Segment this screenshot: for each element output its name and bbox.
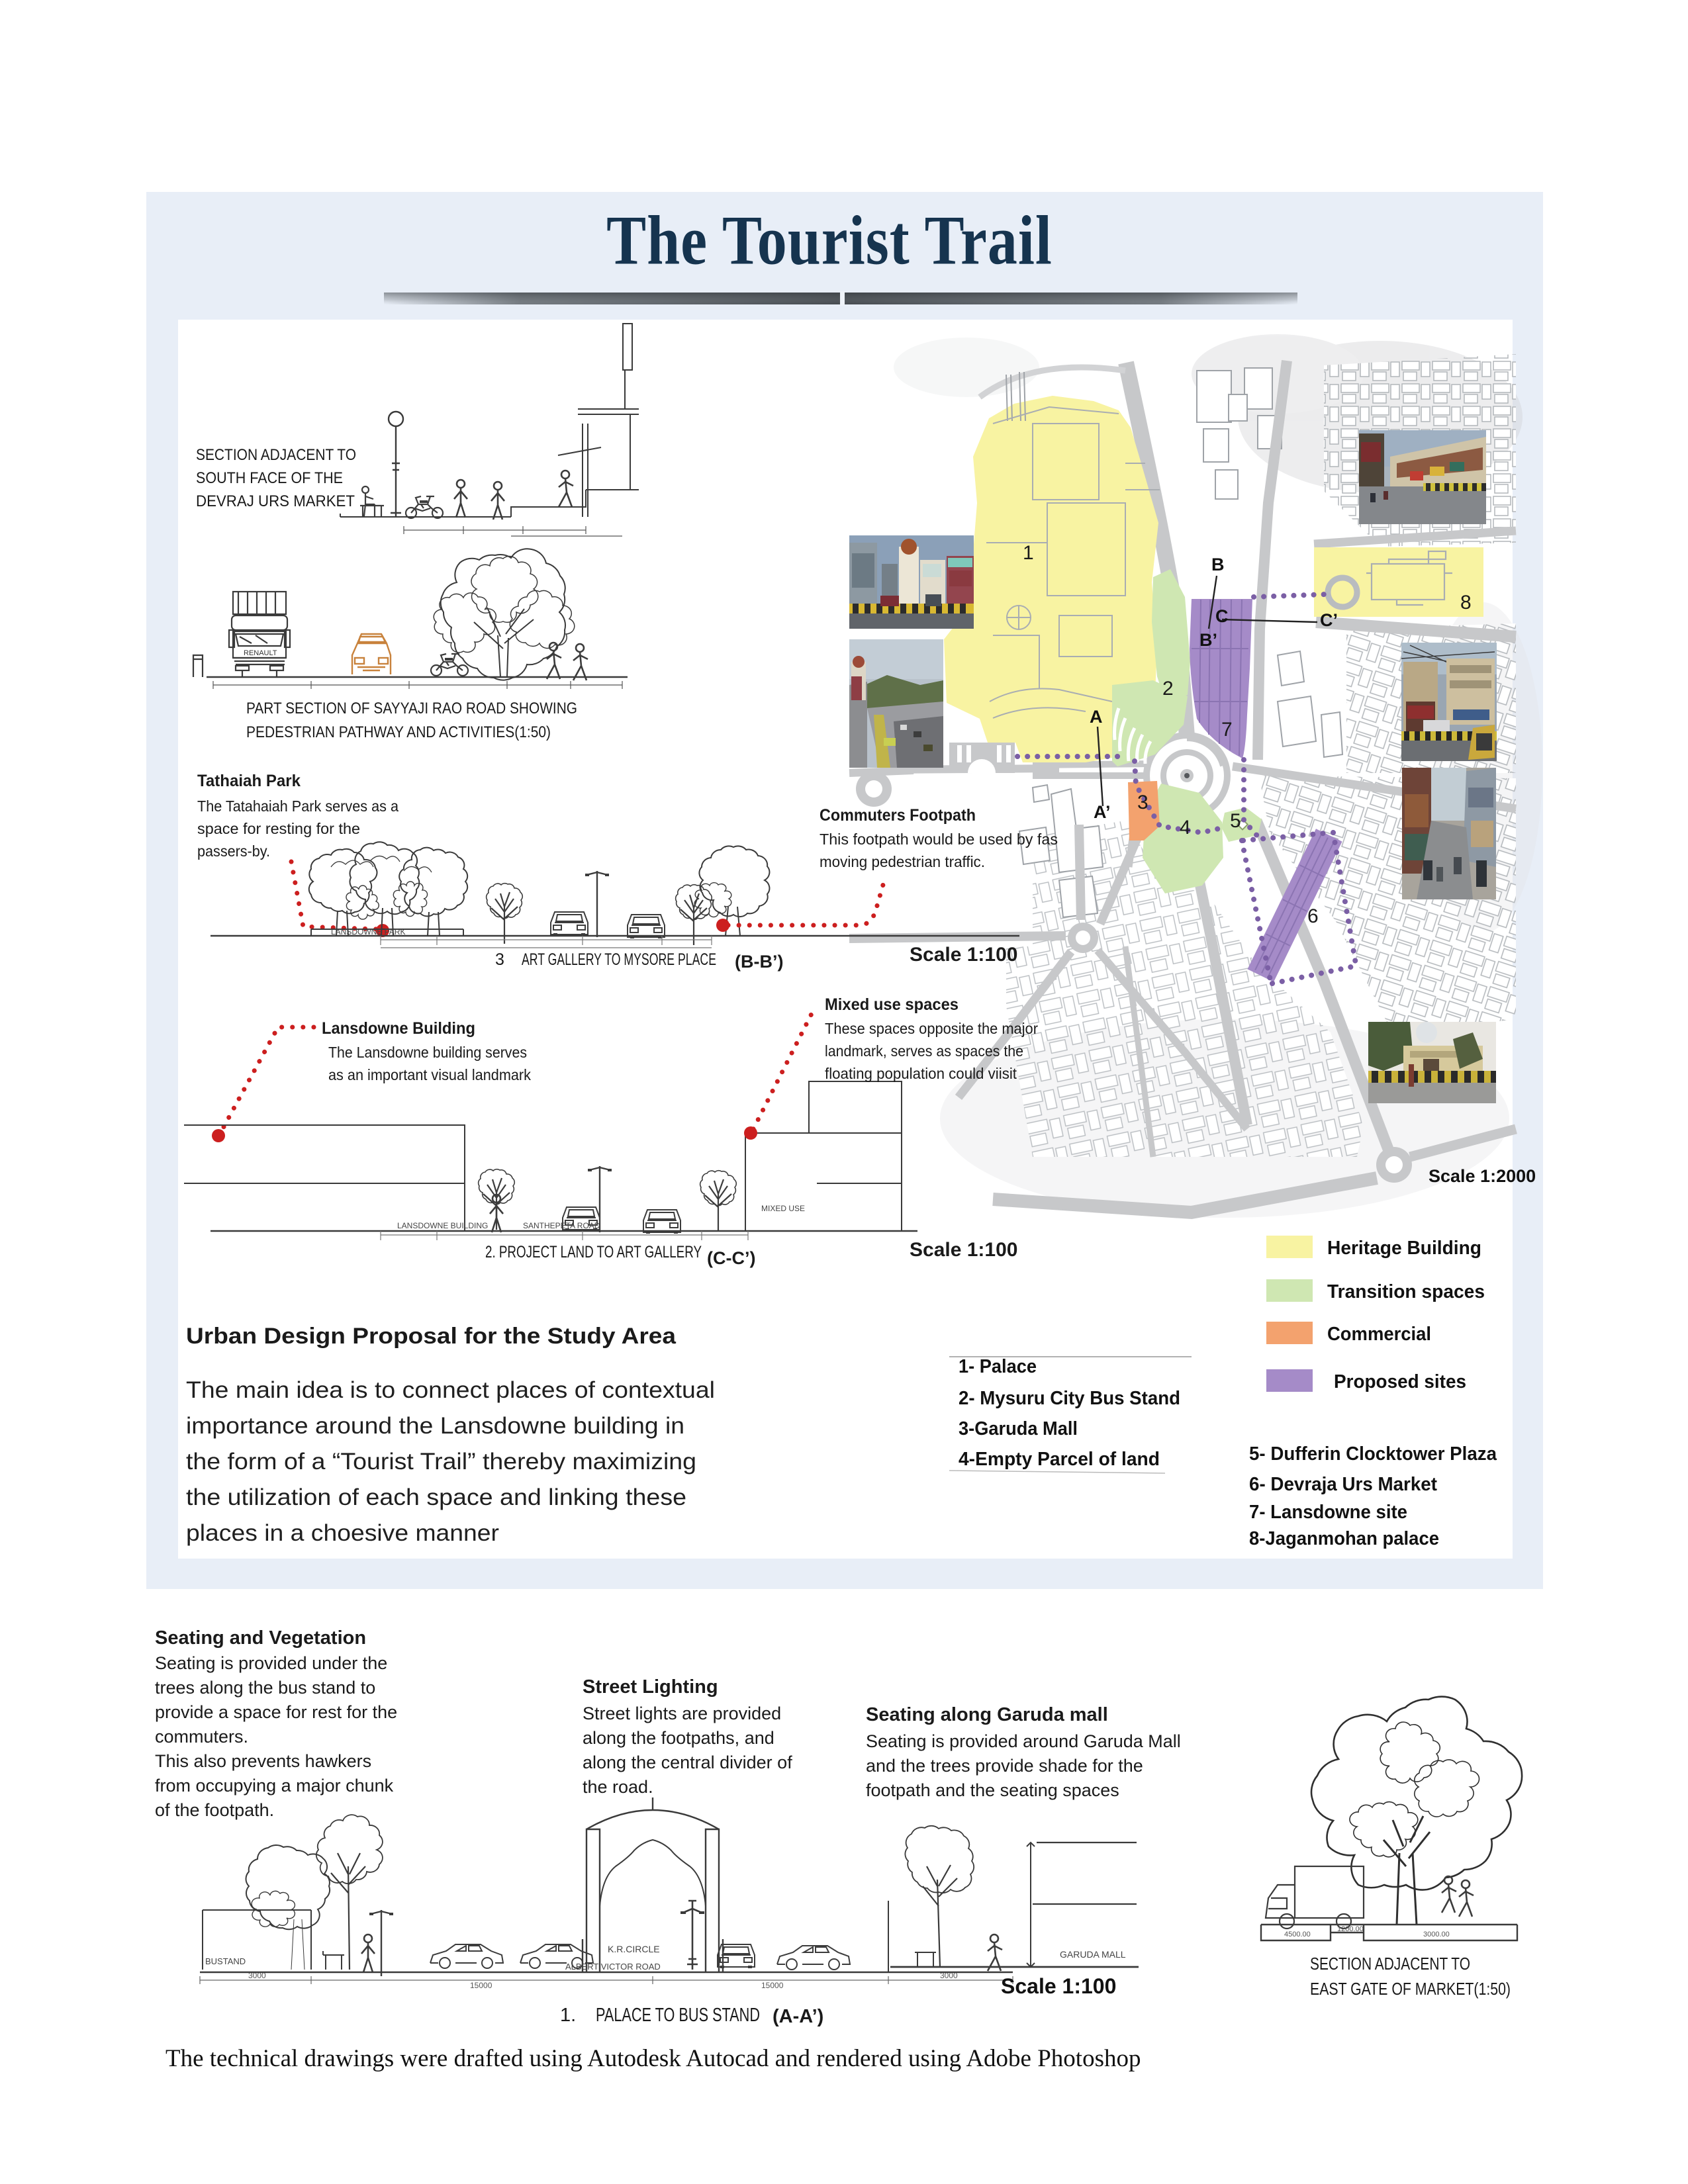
svg-text:5: 5 [1230,810,1241,832]
svg-text:5- Dufferin Clocktower Plaza: 5- Dufferin Clocktower Plaza [1249,1443,1497,1465]
svg-text:6- Devraja Urs Market: 6- Devraja Urs Market [1249,1474,1437,1495]
svg-text:GARUDA MALL: GARUDA MALL [1060,1949,1126,1960]
svg-text:Heritage Building: Heritage Building [1327,1238,1481,1259]
svg-text:SECTION ADJACENT TO: SECTION ADJACENT TO [1310,1954,1470,1974]
svg-text:Lansdowne Building: Lansdowne Building [322,1019,475,1038]
svg-text:trees along the bus stand to: trees along the bus stand to [155,1678,375,1698]
svg-text:provide a space for rest for t: provide a space for rest for the [155,1702,397,1722]
svg-text:2. PROJECT LAND TO ART GALLERY: 2. PROJECT LAND TO ART GALLERY [485,1243,702,1261]
svg-text:SOUTH FACE OF THE: SOUTH FACE OF THE [196,469,343,487]
svg-text:B’: B’ [1199,630,1217,650]
svg-text:Commuters Footpath: Commuters Footpath [820,806,976,825]
svg-text:the road.: the road. [583,1777,653,1797]
svg-text:Street lights are provided: Street lights are provided [583,1704,781,1723]
svg-text:Transition spaces: Transition spaces [1327,1281,1485,1302]
svg-text:C’: C’ [1320,610,1338,630]
svg-text:3: 3 [495,950,504,969]
svg-text:1- Palace: 1- Palace [959,1356,1037,1377]
svg-text:7- Lansdowne site: 7- Lansdowne site [1249,1502,1407,1523]
svg-text:4: 4 [1180,817,1191,839]
svg-text:SANTHEPETA ROAD: SANTHEPETA ROAD [523,1221,600,1230]
svg-text:along the footpaths, and: along the footpaths, and [583,1728,774,1748]
svg-text:C: C [1215,606,1229,626]
svg-text:Seating and Vegetation: Seating and Vegetation [155,1627,366,1649]
svg-text:1200.00: 1200.00 [1337,1925,1364,1933]
svg-text:the utilization of each space: the utilization of each space and linkin… [186,1484,686,1510]
svg-text:MIXED USE: MIXED USE [761,1204,805,1213]
svg-text:K.R.CIRCLE: K.R.CIRCLE [608,1944,660,1954]
svg-text:along the central divider of: along the central divider of [583,1752,792,1772]
svg-text:The Tatahaiah Park serves as a: The Tatahaiah Park serves as a [197,797,399,815]
svg-text:1: 1 [1023,542,1034,564]
svg-text:PART SECTION OF SAYYAJI RAO RO: PART SECTION OF SAYYAJI RAO ROAD SHOWING [246,700,577,717]
svg-text:8: 8 [1460,592,1472,614]
svg-text:Seating along Garuda mall: Seating along Garuda mall [866,1704,1108,1725]
svg-text:3000: 3000 [940,1971,958,1980]
svg-text:Tathaiah Park: Tathaiah Park [197,772,301,790]
svg-text:landmark, serves as spaces the: landmark, serves as spaces the [825,1042,1023,1060]
svg-text:The technical drawings were dr: The technical drawings were drafted usin… [165,2045,1141,2072]
svg-text:DEVRAJ URS MARKET: DEVRAJ URS MARKET [196,492,355,510]
svg-text:PEDESTRIAN PATHWAY AND ACTIVIT: PEDESTRIAN PATHWAY AND ACTIVITIES(1:50) [246,723,551,741]
svg-text:from occupying a major chunk: from occupying a major chunk [155,1776,394,1796]
svg-text:B: B [1211,555,1225,574]
svg-text:floating population could viis: floating population could viisit [825,1065,1017,1082]
svg-text:6: 6 [1307,905,1319,927]
svg-text:the form of a “Tourist Trail”: the form of a “Tourist Trail” thereby ma… [186,1449,696,1475]
svg-text:This footpath would be used by: This footpath would be used by fas [820,831,1058,848]
svg-text:PALACE TO BUS STAND: PALACE TO BUS STAND [596,2005,760,2026]
svg-text:15000: 15000 [761,1981,784,1990]
svg-text:Scale 1:100: Scale 1:100 [1001,1974,1116,1998]
svg-text:7: 7 [1221,719,1233,741]
svg-text:as an important visual landmar: as an important visual landmark [328,1066,531,1083]
svg-text:A’: A’ [1094,802,1111,822]
svg-text:Scale 1:100: Scale 1:100 [910,1239,1017,1261]
svg-text:(C-C’): (C-C’) [707,1248,755,1268]
svg-text:(A-A’): (A-A’) [773,2006,823,2027]
svg-text:EAST GATE OF MARKET(1:50): EAST GATE OF MARKET(1:50) [1310,1979,1511,1999]
svg-text:1.: 1. [560,2005,576,2026]
svg-text:3: 3 [1137,792,1149,813]
svg-text:passers-by.: passers-by. [197,842,270,860]
svg-text:LANSDOWNE BUILDING: LANSDOWNE BUILDING [397,1221,488,1230]
svg-text:Scale 1:100: Scale 1:100 [910,944,1017,966]
svg-text:(B-B’): (B-B’) [735,952,783,972]
svg-text:These spaces opposite the majo: These spaces opposite the major [825,1020,1038,1037]
svg-text:3000: 3000 [248,1971,266,1980]
svg-text:RENAULT: RENAULT [244,649,277,657]
svg-text:space for resting for the: space for resting for the [197,820,360,837]
svg-text:places in a choesive manner: places in a choesive manner [186,1520,499,1546]
svg-text:8-Jaganmohan palace: 8-Jaganmohan palace [1249,1528,1439,1549]
svg-text:3000.00: 3000.00 [1423,1931,1450,1938]
svg-text:footpath and the seating space: footpath and the seating spaces [866,1780,1119,1800]
svg-text:4500.00: 4500.00 [1284,1931,1311,1938]
svg-text:2: 2 [1162,678,1174,700]
svg-text:Seating is provided around Gar: Seating is provided around Garuda Mall [866,1731,1181,1751]
svg-text:2- Mysuru City Bus Stand: 2- Mysuru City Bus Stand [959,1388,1180,1409]
svg-text:SECTION ADJACENT TO: SECTION ADJACENT TO [196,446,356,464]
svg-text:Urban Design Proposal for the: Urban Design Proposal for the Study Area [186,1324,677,1349]
svg-text:ALBERT VICTOR ROAD: ALBERT VICTOR ROAD [565,1962,661,1972]
svg-text:The Lansdowne building serves: The Lansdowne building serves [328,1044,527,1061]
svg-text:moving pedestrian traffic.: moving pedestrian traffic. [820,853,985,870]
svg-text:Mixed use spaces: Mixed use spaces [825,995,959,1014]
svg-text:ART GALLERY TO MYSORE PLACE: ART GALLERY TO MYSORE PLACE [522,950,716,969]
svg-text:commuters.: commuters. [155,1727,248,1747]
svg-text:of the footpath.: of the footpath. [155,1800,274,1820]
svg-text:4-Empty Parcel of land: 4-Empty Parcel of land [959,1449,1160,1470]
svg-text:BUSTAND: BUSTAND [205,1956,246,1966]
svg-text:and the trees provide shade fo: and the trees provide shade for the [866,1756,1143,1776]
svg-text:Commercial: Commercial [1327,1324,1431,1345]
svg-text:Street Lighting: Street Lighting [583,1676,718,1698]
svg-text:This also prevents hawkers: This also prevents hawkers [155,1751,371,1771]
svg-text:The main idea is to connect pl: The main idea is to connect places of co… [186,1377,715,1403]
svg-text:importance around the Lansdown: importance around the Lansdowne building… [186,1413,684,1439]
svg-text:3-Garuda Mall: 3-Garuda Mall [959,1418,1078,1439]
svg-text:Proposed sites: Proposed sites [1334,1371,1466,1392]
svg-text:Seating is provided under the: Seating is provided under the [155,1653,387,1673]
svg-text:A: A [1090,707,1103,727]
svg-text:Scale 1:2000: Scale 1:2000 [1429,1166,1536,1186]
svg-text:15000: 15000 [470,1981,492,1990]
